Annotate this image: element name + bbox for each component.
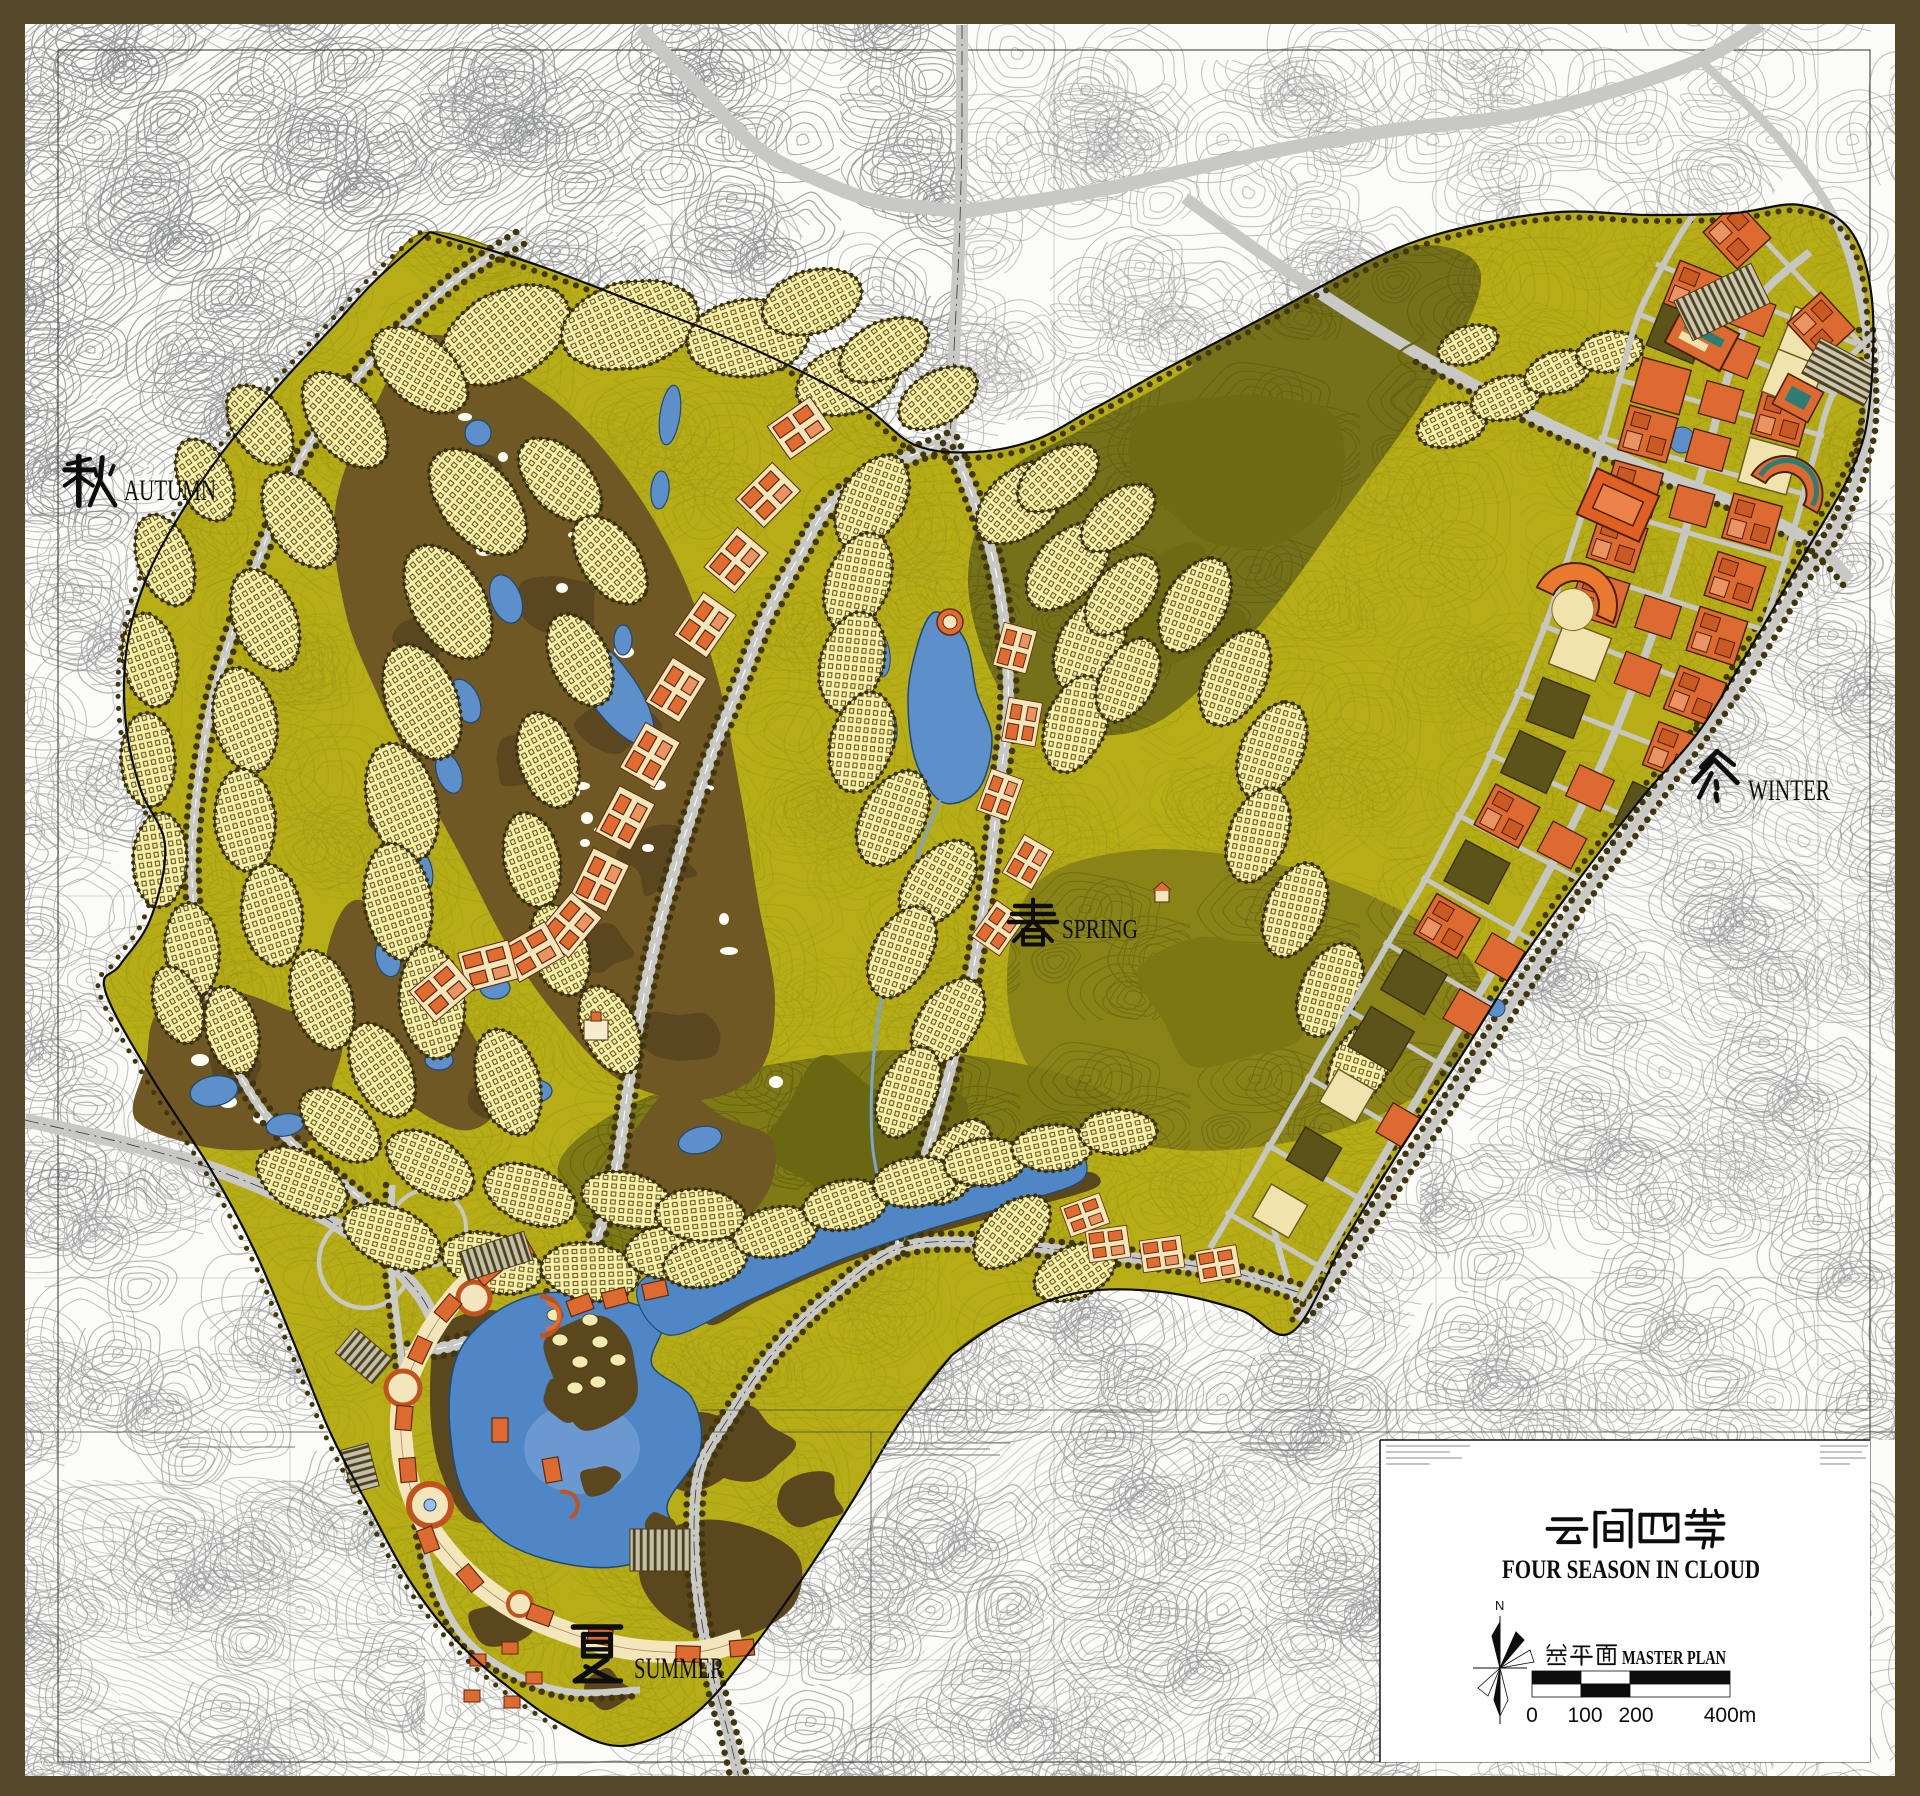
svg-text:WINTER: WINTER [1748, 774, 1830, 807]
svg-text:400m: 400m [1704, 1704, 1757, 1727]
svg-text:SUMMER: SUMMER [634, 1652, 724, 1685]
svg-text:100: 100 [1567, 1704, 1602, 1727]
svg-text:0: 0 [1526, 1704, 1538, 1727]
svg-text:SPRING: SPRING [1062, 914, 1138, 944]
svg-text:200: 200 [1618, 1704, 1653, 1727]
svg-text:MASTER PLAN: MASTER PLAN [1622, 1647, 1726, 1669]
svg-text:N: N [1495, 1598, 1504, 1613]
svg-text:AUTUMN: AUTUMN [124, 474, 216, 507]
svg-text:FOUR SEASON IN CLOUD: FOUR SEASON IN CLOUD [1502, 1555, 1760, 1584]
